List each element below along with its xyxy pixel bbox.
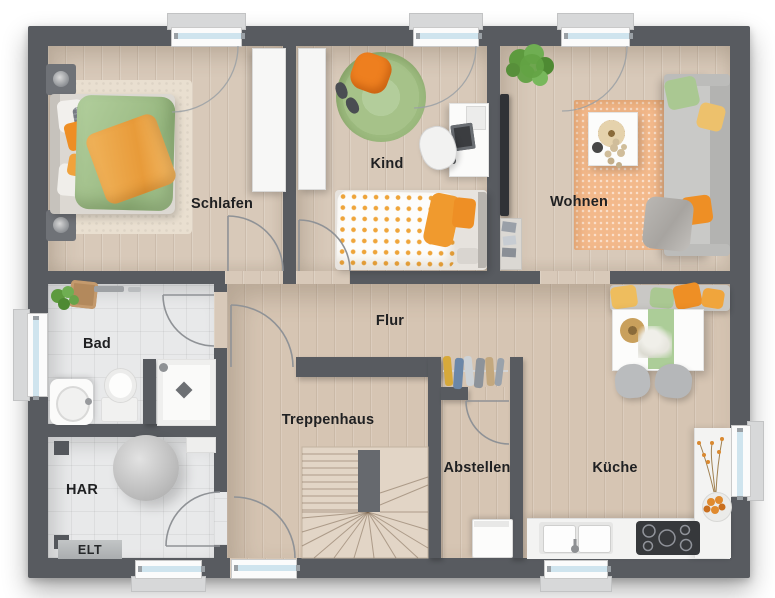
washing-machine-panel — [474, 521, 509, 527]
toilet-bowl — [104, 368, 137, 403]
towel-rail — [94, 286, 124, 292]
tv — [500, 94, 509, 216]
door-opening-har — [214, 492, 227, 545]
pillow — [455, 230, 477, 248]
elt-panel: ELT — [58, 540, 122, 559]
wall-shower-stub — [143, 359, 156, 424]
room-label-wohnen: Wohnen — [550, 194, 608, 210]
window-glass — [416, 33, 482, 39]
wall-treppenhaus-top — [296, 357, 441, 377]
room-label-har: HAR — [66, 482, 98, 498]
room-label-kind: Kind — [370, 156, 403, 172]
yellow-pillow — [610, 284, 639, 309]
yellow-pillow — [701, 287, 726, 309]
window-glass — [138, 566, 205, 572]
window-glass — [33, 316, 39, 400]
nightstand-lamp — [53, 217, 69, 233]
wall-treppenhaus-right — [428, 357, 441, 558]
wall-abstellen-top — [441, 387, 468, 400]
passage-wohnen — [540, 271, 610, 284]
flowers — [638, 326, 672, 358]
cooktop — [636, 521, 700, 555]
books — [503, 235, 517, 245]
room-label-kueche: Küche — [592, 460, 637, 476]
room-label-bad: Bad — [83, 336, 111, 352]
entrance-door-glass — [234, 565, 300, 571]
water-tank — [113, 435, 179, 501]
faucet — [85, 398, 92, 405]
nightstand-lamp — [53, 71, 69, 87]
green-pillow — [649, 287, 675, 309]
door-opening-abstellen — [468, 387, 510, 400]
room-label-treppenhaus: Treppenhaus — [282, 412, 374, 428]
sink-basin-oval — [56, 386, 90, 422]
sink-basin — [543, 525, 576, 553]
window-glass — [737, 428, 743, 500]
door-opening-schlafen — [225, 271, 283, 284]
books — [502, 248, 516, 258]
towel-rail — [128, 287, 141, 292]
floor-plan-image: ELT — [0, 0, 775, 598]
sofa-backrest — [710, 74, 730, 256]
decor-tray — [598, 120, 625, 147]
shelf — [186, 437, 216, 453]
shower-head — [159, 363, 168, 372]
kid-bed-headboard — [478, 192, 487, 268]
cup — [592, 142, 603, 153]
room-label-abstellen: Abstellen — [443, 460, 510, 476]
window-glass — [547, 566, 611, 572]
room-label-schlafen: Schlafen — [191, 196, 253, 212]
pillow — [457, 248, 479, 264]
fruit-bowl — [702, 492, 732, 522]
window-glass — [564, 33, 633, 39]
room-label-flur: Flur — [376, 313, 404, 329]
door-opening-kind — [296, 271, 350, 284]
storage-basket — [69, 280, 99, 310]
sink-basin — [578, 525, 611, 553]
gray-blanket — [641, 196, 694, 253]
elt-label: ELT — [78, 543, 102, 557]
door-opening-bad — [214, 292, 227, 348]
window-glass — [174, 33, 245, 39]
books — [501, 221, 516, 233]
wardrobe — [252, 48, 286, 192]
dining-chair — [614, 363, 651, 399]
wardrobe — [298, 48, 326, 190]
orange-pillow — [451, 197, 476, 229]
wall-pilaster — [54, 441, 69, 455]
